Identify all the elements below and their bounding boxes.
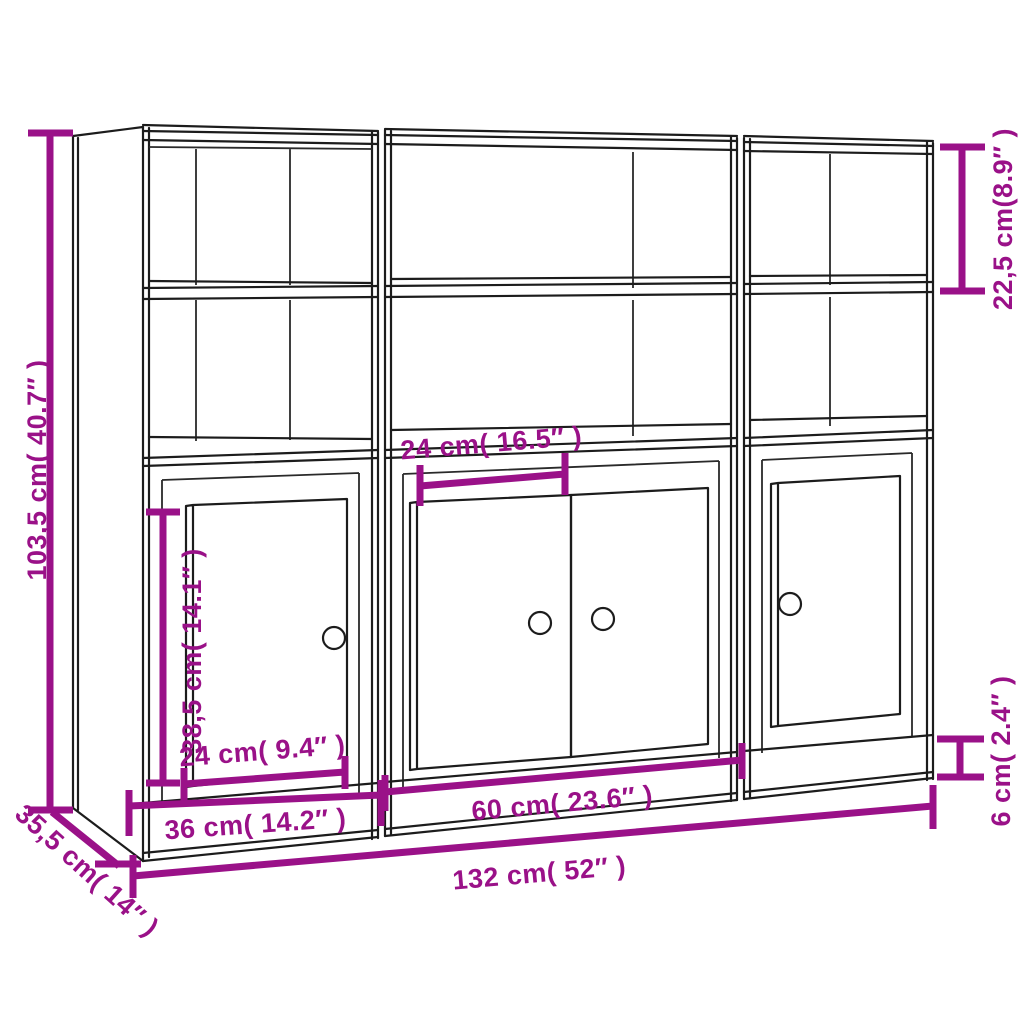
furniture-line-drawing: 103,5 cm( 40.7″ ) 22,5 cm(8.9″ ) 6 cm( 2… (0, 0, 1024, 1024)
dim-label-total-height: 103,5 cm( 40.7″ ) (22, 359, 52, 580)
right-unit-door-opening (762, 453, 912, 753)
right-unit-counter (744, 416, 933, 446)
left-unit-counter (143, 437, 378, 466)
right-door (771, 476, 900, 727)
left-unit-interior-lines (149, 147, 372, 441)
knob-right-door (779, 593, 801, 615)
right-unit-shelf (744, 275, 933, 294)
dim-label-left-unit-width: 36 cm( 14.2″ ) (164, 803, 348, 846)
dim-label-middle-compartment-width: 24 cm( 16.5″ ) (399, 421, 583, 466)
dim-plinth-height: 6 cm( 2.4″ ) (937, 676, 1016, 827)
right-unit-plinth (744, 735, 933, 799)
middle-unit-top-slab (385, 129, 737, 150)
dimension-annotations: 103,5 cm( 40.7″ ) 22,5 cm(8.9″ ) 6 cm( 2… (9, 128, 1018, 942)
dim-label-top-compartment: 22,5 cm(8.9″ ) (988, 128, 1018, 310)
right-unit (744, 136, 933, 799)
right-unit-edges (744, 138, 933, 799)
dim-line (937, 739, 984, 777)
dim-line (940, 147, 985, 291)
middle-unit-shelf (385, 277, 737, 297)
dimension-diagram: 103,5 cm( 40.7″ ) 22,5 cm(8.9″ ) 6 cm( 2… (0, 0, 1024, 1024)
left-unit-shelf (143, 281, 378, 299)
dim-line (146, 512, 180, 783)
dim-total-height: 103,5 cm( 40.7″ ) (22, 133, 73, 810)
dim-label-plinth-height: 6 cm( 2.4″ ) (986, 676, 1016, 827)
dim-left-door-width: 24 cm( 9.4″ ) (178, 730, 346, 801)
left-unit-top-slab (143, 125, 378, 144)
middle-unit-door-opening (403, 461, 719, 792)
knob-middle-right-door (592, 608, 614, 630)
dim-label-total-width: 132 cm( 52″ ) (451, 851, 627, 896)
dim-middle-compartment-width: 24 cm( 16.5″ ) (399, 421, 583, 506)
knob-middle-left-door (529, 612, 551, 634)
left-side-panel (73, 127, 143, 861)
dim-left-unit-width: 36 cm( 14.2″ ) (129, 780, 381, 845)
dim-label-middle-unit-width: 60 cm( 23.6″ ) (470, 780, 654, 826)
dim-top-compartment-height: 22,5 cm(8.9″ ) (940, 128, 1018, 310)
side-panel-outline (73, 127, 143, 861)
dim-label-door-height: 38,5 cm( 14.1″ ) (177, 548, 207, 754)
right-unit-top-slab (744, 136, 933, 154)
knob-left-door (323, 627, 345, 649)
